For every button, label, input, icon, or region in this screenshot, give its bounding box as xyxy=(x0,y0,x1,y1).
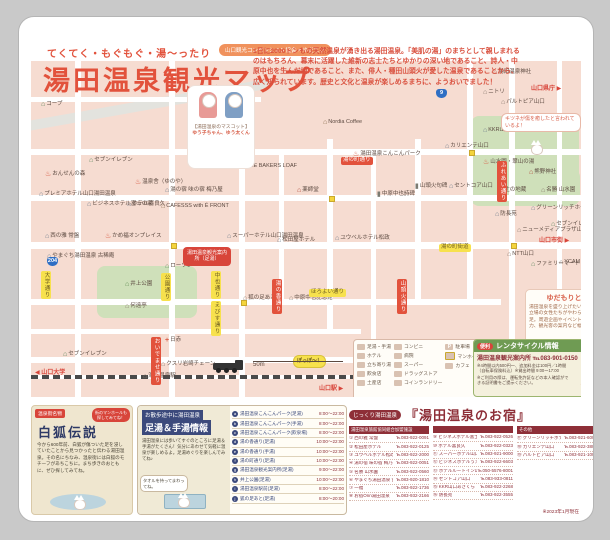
lodging-column-3: その他 ⑰ グリーンリッチホテル山口湯田温泉℡083-921-6000⑱ カリエ… xyxy=(517,426,594,501)
white-fox-illustration xyxy=(529,141,543,153)
legend-item: コインランドリー xyxy=(394,379,442,386)
map-landmark: ▮ 山頭火句碑 xyxy=(415,183,447,190)
landmark-icon: ⌂ xyxy=(551,221,555,228)
map-landmark: ⌂ YCAM xyxy=(559,259,580,266)
rental-title: レンタサイクル情報 xyxy=(496,341,559,351)
landmark-icon: ▮ xyxy=(415,183,419,190)
footbath-entry-time: 10:00〜22:00 xyxy=(316,458,344,464)
white-fox-illustration xyxy=(176,494,190,506)
route-shield: 204 xyxy=(47,257,58,266)
road xyxy=(75,61,81,397)
landmark-label: おんせんの森 xyxy=(52,171,85,177)
map-landmark: ⌂ 何遠亭 xyxy=(125,303,147,310)
footbath-info-panel: お散歩途中に湯田温泉 足湯＆手湯情報 湯田温泉には歩いてすぐのところに足湯＆手湯… xyxy=(137,405,347,515)
map-area: ⌂ 湯田温泉神社 ⌂ ニトリ ⌂ パルトピア山口 ⌂ xyxy=(31,61,581,397)
hotel-row: ⑬ ホテルルートイン山口湯田温泉℡050-5576-8001 xyxy=(433,467,513,475)
lodging-column-2: ⑨ ビジネスホテル富士の家℡083-922-0526⑩ ホテル喜良久℡083-9… xyxy=(433,426,513,501)
lodging-group-1-band-2 xyxy=(433,426,513,433)
hotel-row: ⑩ ホテル喜良久℡083-922-0323 xyxy=(433,442,513,450)
landmark-icon: ⌂ xyxy=(289,295,293,302)
lodging-column-1: 湯田温泉旅館協同組合加盟施設 ① 西の雅 常盤℡083-922-0091② 松田… xyxy=(349,426,429,501)
map-landmark: ♨ 温泉舎（ゆのや） xyxy=(135,179,186,186)
map-landmark: + 日赤 xyxy=(165,337,181,344)
landmark-icon: ⌂ xyxy=(507,251,511,258)
landmark-icon: ⌂ xyxy=(335,235,339,242)
landmark-icon: ⌂ xyxy=(277,237,281,244)
mascot-caption: 【湯田温泉のマスコット】ゆう子ちゃん、ゆう太くん xyxy=(188,125,254,137)
landmark-icon: ♨ xyxy=(135,179,141,186)
footbath-entry-time: 8:00〜20:00 xyxy=(319,496,344,502)
landmark-icon: ⌂ xyxy=(125,281,129,288)
rental-note-2: ※ご利用の際は、運転免許証などの本人確認ができる証明書をご提示ください。 xyxy=(477,375,569,386)
footbath-entry: b 湯田温泉こんこんパーク(手湯) 8:00〜22:00 xyxy=(232,419,344,428)
footbath-entry-key: g xyxy=(232,467,238,473)
map-landmark: ⌂ NTT山口 xyxy=(507,251,534,258)
map-landmark: ⌂ 西の雅 常盤 xyxy=(45,233,79,240)
landmark-label: 熊野神社 xyxy=(534,169,556,175)
hotel-row: ① 西の雅 常盤℡083-922-0091 xyxy=(349,435,429,443)
landmark-label: かめ福オンプレイス xyxy=(112,233,161,239)
map-landmark: ⌂ パルトピア山口 xyxy=(501,99,545,106)
rental-phone: 湯田温泉観光案内所 ℡083-901-0150 xyxy=(477,353,581,362)
road-label: 湯の香通り xyxy=(272,279,282,314)
map-poster: ⌂ 湯田温泉神社 ⌂ ニトリ ⌂ パルトピア山口 ⌂ xyxy=(0,0,610,540)
landmark-icon: ⌂ xyxy=(531,261,535,268)
fox-legend-title: 白狐伝説 xyxy=(38,422,98,441)
map-landmark: ▮ 中原中也詩碑 xyxy=(377,191,415,198)
road-label: 湯の町街道 xyxy=(439,244,471,252)
legend-chip xyxy=(357,344,365,350)
map-landmark: ⌂ プレミアホテル山口湯田温泉 xyxy=(39,191,116,198)
footbath-entry-key: b xyxy=(232,421,238,427)
legend-item: コンビニ xyxy=(394,343,442,350)
footbath-entry-time: 9:00〜22:00 xyxy=(319,467,344,473)
landmark-label: 日赤 xyxy=(170,337,181,343)
landmark-label: 湯の宿 味の宿 梅乃屋 xyxy=(170,187,223,193)
map-landmark: ⌂ コープ xyxy=(41,101,62,108)
footbath-entry-time: 8:00〜22:00 xyxy=(319,430,344,436)
road-label: ふれあい通り xyxy=(497,161,507,202)
map-landmark: ⌂ 薬師堂 xyxy=(297,187,319,194)
lodging-group-1-band: 湯田温泉旅館協同組合加盟施設 xyxy=(349,426,429,434)
footbath-entry-name: 湯の町通り(足湯) xyxy=(240,458,314,464)
map-landmark: ⌂ ニトリ xyxy=(483,89,505,96)
map-legend: 足湯・手湯ホテル立ち寄り湯飲食店土産店 コンビニ病院スーパードラッグストアコイン… xyxy=(353,339,483,397)
lodging-group-2-band: その他 xyxy=(517,426,594,434)
landmark-label: 防長苑 xyxy=(500,211,517,217)
hotel-row: ⑮ KKR山口あさくら℡083-922-2268 xyxy=(433,484,513,492)
landmark-icon: ⌂ xyxy=(89,157,93,164)
footbath-entry-time: 8:00〜22:00 xyxy=(319,486,344,492)
map-landmark: ⌂ CAFESSS with É FRONT xyxy=(161,203,229,210)
landmark-icon: ⌂ xyxy=(297,187,301,194)
rental-tag: 便利 xyxy=(477,343,493,350)
footbath-entry-name: 狐の足あと(足湯) xyxy=(240,496,317,502)
map-landmark: ⌂ 井上公園 xyxy=(125,281,152,288)
railway-line xyxy=(31,375,361,379)
hotel-row: ⑥ やまぐち湯田温泉 古稀庵℡083-920-1810 xyxy=(349,476,429,484)
road-label: ほろよい通り xyxy=(309,289,346,297)
landmark-label: YCAM xyxy=(564,259,580,265)
landmark-label: 松田屋ホテル xyxy=(282,237,315,243)
legend-chip xyxy=(357,371,365,377)
landmark-icon: ⌂ xyxy=(501,99,505,106)
landmark-icon: ⌂ xyxy=(87,201,91,208)
landmark-icon: ⌂ xyxy=(161,203,165,210)
landmark-label: ニトリ xyxy=(488,89,505,95)
legend-chip xyxy=(357,353,365,359)
road xyxy=(415,139,421,299)
road-label: 湯の町通り xyxy=(341,157,373,165)
landmark-label: NTT山口 xyxy=(512,251,534,257)
footbath-entry: e 湯の香通り(手湯) 10:00〜22:00 xyxy=(232,448,344,457)
legend-chip: P xyxy=(445,344,453,350)
hotel-row: ⑨ ビジネスホテル富士の家℡083-922-0526 xyxy=(433,434,513,442)
legend-chip xyxy=(394,371,402,377)
landmark-icon: + xyxy=(165,337,169,344)
landmark-icon: ⌂ xyxy=(517,227,521,234)
footbath-entry-key: f xyxy=(232,458,238,464)
landmark-icon: ⌂ xyxy=(529,169,533,176)
manhole-icon xyxy=(511,243,517,249)
manhole-icon xyxy=(469,150,475,156)
footbath-entry-key: a xyxy=(232,411,238,417)
manhole-badge: 街のマンホールも探してみてね！ xyxy=(92,408,130,422)
lodging-title: 『湯田温泉のお宿』 xyxy=(405,405,531,424)
footbath-entry: a 湯田温泉こんこんパーク(足湯) 8:00〜22:00 xyxy=(232,410,344,419)
footbath-entry-time: 8:00〜22:00 xyxy=(319,421,344,427)
legend-item: 土産店 xyxy=(357,379,391,386)
legend-chip xyxy=(357,362,365,368)
hotel-row: ⑤ 名勝 山水園℡083-922-0560 xyxy=(349,468,429,476)
footbath-title-top: お散歩途中に湯田温泉 xyxy=(142,410,203,420)
legend-item: 立ち寄り湯 xyxy=(357,361,391,368)
route-shield: 9 xyxy=(436,89,447,98)
landmark-icon: ⌂ xyxy=(39,191,43,198)
hotel-row: ③ ユウベルホテル松政℡083-922-2000 xyxy=(349,452,429,460)
road-label: 中也通り xyxy=(211,271,221,299)
landmark-icon: ⌂ xyxy=(445,143,449,150)
map-landmark: ♨ かめ福オンプレイス xyxy=(105,233,161,240)
park-area xyxy=(97,266,197,318)
direction-label: 山口駅 ▶ xyxy=(319,383,343,392)
landmark-label: ニューメディアプラザ山口 xyxy=(522,227,581,233)
map-landmark: ⌂ 松田屋ホテル xyxy=(277,237,315,244)
mascot-yuta xyxy=(225,92,243,118)
road-label: 大学通り xyxy=(41,271,51,299)
footer-note: ※2023年1月現在 xyxy=(542,508,579,515)
legend-item: ホテル xyxy=(357,352,391,359)
landmark-icon: ⌂ xyxy=(541,187,545,194)
landmark-label: 西の雅 常盤 xyxy=(50,233,79,239)
footbath-entry-key: d xyxy=(232,439,238,445)
legend-chip xyxy=(394,380,402,386)
landmark-icon: ⌂ xyxy=(63,351,67,358)
footbath-entry-key: j xyxy=(232,496,238,502)
legend-chip xyxy=(357,380,365,386)
hotel-row: ⑲ パルトピア山口℡083-921-1000 xyxy=(517,452,594,460)
footbath-entry: f 湯の町通り(足湯) 10:00〜22:00 xyxy=(232,457,344,466)
road xyxy=(31,149,581,155)
landmark-label: セブンイレブン xyxy=(68,351,107,357)
landmark-label: 名勝 山水園 xyxy=(546,187,575,193)
landmark-label: コープ xyxy=(46,101,62,107)
landmark-icon: ♨ xyxy=(45,171,51,178)
landmark-label: 辻の地蔵 xyxy=(504,187,526,193)
rental-cycle-box: 便利 レンタサイクル情報 湯田温泉観光案内所 ℡083-901-0150 ※4時… xyxy=(473,339,581,397)
hotel-row: ④ 湯の宿 味の宿 梅乃屋℡083-922-0051 xyxy=(349,460,429,468)
legend-chip xyxy=(394,353,402,359)
landmark-icon: ⌂ xyxy=(449,183,453,190)
map-landmark: ⌂ 狐の足あと xyxy=(243,295,276,302)
footbath-bubble: タオルを持ってまわってね。 xyxy=(140,475,188,492)
direction-label: 山口市街 ▶ xyxy=(539,235,569,244)
footbath-list: a 湯田温泉こんこんパーク(足湯) 8:00〜22:00 b 湯田温泉こんこんパ… xyxy=(232,410,344,504)
footbath-entry-name: 湯田温泉こんこんパーク(足湯) xyxy=(240,411,317,417)
landmark-icon: ▮ xyxy=(377,191,381,198)
landmark-icon: ♨ xyxy=(105,233,111,240)
hotel-row: ⑧ お宿Onn湯田温泉℡083-932-2166 xyxy=(349,493,429,501)
footbath-entry: g 湯田温泉観光案内所(足湯) 9:00〜22:00 xyxy=(232,466,344,475)
hotel-row: ⑫ ビジネスホテルうえの℡083-922-6603 xyxy=(433,459,513,467)
hotel-row: ② 松田屋ホテル℡083-922-0125 xyxy=(349,443,429,451)
footbath-entry-name: 湯田温泉こんこんパーク(手湯) xyxy=(240,421,317,427)
map-landmark: ⌂ 名勝 山水園 xyxy=(541,187,575,194)
road xyxy=(169,61,175,397)
footbath-note: 湯田温泉には歩いてすぐのところに足湯＆手湯がたくさん！気分にあわせて気軽に温泉が… xyxy=(142,438,226,463)
landmark-label: グリーンリッチホテル xyxy=(536,205,581,211)
rental-header: 便利 レンタサイクル情報 xyxy=(474,340,581,352)
landmark-icon: ⌂ xyxy=(559,259,563,266)
map-landmark: ⌂ カリエンテ山口 xyxy=(445,143,489,150)
map-landmark: ⌂ セブンイレブン xyxy=(63,351,107,358)
landmark-icon: ⌂ xyxy=(161,361,165,368)
hotel-row: ⑱ カリエンテ山口℡083-922-3800 xyxy=(517,443,594,451)
landmark-icon: ⌂ xyxy=(227,233,231,240)
hotel-row: ⑭ セントコア山口℡083-933-0811 xyxy=(433,475,513,483)
road xyxy=(279,149,284,299)
fox-legend-panel: 温泉街名物 街のマンホールも探してみてね！ 白狐伝説 今から600年前、白狐が傷… xyxy=(31,405,133,515)
footbath-entry-time: 10:00〜22:00 xyxy=(316,439,344,445)
map-landmark: ⌂ セブンイレブン xyxy=(551,221,581,228)
landmark-label: セントコア山口 xyxy=(454,183,493,189)
map-landmark: ⌂ セントコア山口 xyxy=(449,183,493,190)
landmark-label: 何遠亭 xyxy=(130,303,147,309)
footbath-entry: i 湯田温泉駅前(足湯) 8:00〜22:00 xyxy=(232,485,344,494)
landmark-icon: ♨ xyxy=(483,159,489,166)
legend-chip xyxy=(394,344,402,350)
map-scale: 50m xyxy=(253,361,343,368)
footbath-entry-key: i xyxy=(232,486,238,492)
landmark-icon: ⌂ xyxy=(483,127,487,134)
footbath-entry-key: e xyxy=(232,449,238,455)
fox-legend-ribbon: 温泉街名物 xyxy=(35,409,65,418)
lodging-panel: じっくり湯田温泉 『湯田温泉のお宿』 湯田温泉旅館協同組合加盟施設 ① 西の雅 … xyxy=(349,405,594,513)
road xyxy=(371,149,376,357)
map-landmark: ⌂ 湯の宿 味の宿 梅乃屋 xyxy=(165,187,223,194)
legend-chip xyxy=(445,352,455,360)
road xyxy=(239,139,245,397)
landmark-icon: ⌂ xyxy=(243,295,247,302)
lodging-tag: じっくり湯田温泉 xyxy=(349,410,401,420)
landmark-label: 井上公園 xyxy=(130,281,152,287)
intro-paragraph: 1日に2000トンもの天然温泉が湧き出る湯田温泉。「美肌の湯」のまちとして親しま… xyxy=(253,47,521,88)
landmark-icon: ⌂ xyxy=(495,211,499,218)
legend-item: 足湯・手湯 xyxy=(357,343,391,350)
map-landmark: ⌂ クスリ岩崎チェーン xyxy=(161,361,215,368)
road-label: 公園通り xyxy=(161,273,171,301)
steam-train-icon xyxy=(213,361,243,373)
legend-item: 病院 xyxy=(394,352,442,359)
footbath-title-main: 足湯＆手湯情報 xyxy=(142,420,211,435)
footbath-entry-time: 8:00〜22:00 xyxy=(319,411,344,417)
tourist-info-badge: 湯田温泉観光案内所（足湯） xyxy=(183,247,231,266)
landmark-label: 温泉舎（ゆのや） xyxy=(142,179,186,185)
poster-card: ⌂ 湯田温泉神社 ⌂ ニトリ ⌂ パルトピア山口 ⌂ xyxy=(18,16,594,522)
road xyxy=(467,61,473,299)
yudamori-title: ゆだもりとは… xyxy=(529,293,581,303)
landmark-label: セブンイレブン xyxy=(94,157,133,163)
landmark-label: パルトピア山口 xyxy=(506,99,545,105)
qr-caption: 山口市内の交通情報はこちらから！ xyxy=(579,378,581,392)
legend-item: スーパー xyxy=(394,361,442,368)
manhole-icon xyxy=(329,196,335,202)
map-landmark: ⌂ ニューメディアプラザ山口 xyxy=(517,227,581,234)
landmark-icon: ⌂ xyxy=(45,233,49,240)
mascot-card: 【湯田温泉のマスコット】ゆう子ちゃん、ゆう太くん xyxy=(187,85,255,169)
landmark-icon: ⌂ xyxy=(143,373,147,380)
map-landmark: ⌂ セブンイレブン xyxy=(89,157,133,164)
white-fox-illustration xyxy=(72,496,86,508)
map-landmark: ♨ 山水園・翠山の湯 xyxy=(483,159,534,166)
landmark-icon: ⌂ xyxy=(531,205,535,212)
footbath-entry: d 湯の香通り(足湯) 10:00〜22:00 xyxy=(232,438,344,447)
legend-item: ドラッグストア xyxy=(394,370,442,377)
landmark-label: プレミアホテル山口湯田温泉 xyxy=(44,191,116,197)
footbath-entry-name: 湯田温泉こんこんパーク(飲泉場) xyxy=(240,430,317,436)
hotel-row: ⑦ 一福℡083-922-1736 xyxy=(349,485,429,493)
yudamori-body: 湯田温泉を盛り上げたい、さまざまな立場の女性たちがやわらとなって発足。周遊企画や… xyxy=(529,305,581,331)
footbath-entry: j 狐の足あと(足湯) 8:00〜20:00 xyxy=(232,494,344,503)
landmark-label: 薬師堂 xyxy=(302,187,319,193)
footbath-entry: c 湯田温泉こんこんパーク(飲泉場) 8:00〜22:00 xyxy=(232,429,344,438)
fox-legend-body: 今から600年前、白狐が傷ついた足を浸していたことから見つかったと伝わる湯田温泉… xyxy=(37,442,127,474)
landmark-label: カリエンテ山口 xyxy=(450,143,489,149)
map-landmark: ⌂ ホテル喜良久 xyxy=(127,201,165,208)
landmark-icon: ⌂ xyxy=(41,101,45,108)
landmark-label: やまぐち湯田温泉 古稀庵 xyxy=(52,253,114,259)
hotel-row: ⑯ 防長苑℡083-922-3555 xyxy=(433,492,513,500)
footbath-entry: h 井上公園(足湯) 10:00〜22:00 xyxy=(232,476,344,485)
footbath-entry-name: 湯田温泉駅前(足湯) xyxy=(240,486,317,492)
footbath-entry-name: 湯の香通り(足湯) xyxy=(240,439,314,445)
landmark-label: 中原中也詩碑 xyxy=(382,191,415,197)
manhole-icon xyxy=(171,243,177,249)
landmark-icon: ⌂ xyxy=(165,263,169,270)
legend-chip xyxy=(394,362,402,368)
road-label: おいでませ通り xyxy=(151,337,161,385)
road-label: 山頭火通り xyxy=(397,279,407,314)
legend-chip xyxy=(445,363,453,369)
map-landmark: ⌂ グリーンリッチホテル xyxy=(531,205,581,212)
landmark-label: 山頭火句碑 xyxy=(420,183,448,189)
landmark-icon: ⌂ xyxy=(165,187,169,194)
map-landmark: ⌂ ユウベルホテル松政 xyxy=(335,235,390,242)
hotel-row: ⑰ グリーンリッチホテル山口湯田温泉℡083-921-6000 xyxy=(517,435,594,443)
lodging-header: じっくり湯田温泉 『湯田温泉のお宿』 xyxy=(349,405,594,424)
map-landmark: ⌂ 防長苑 xyxy=(495,211,517,218)
footbath-entry-time: 10:00〜22:00 xyxy=(316,477,344,483)
rental-note-1: ※4時間以内500円〜、追加料金は100円／1時間（自転車保険料込）※貸出時間 … xyxy=(477,363,569,374)
coffee-shop-label: ⌂Nordia Coffee xyxy=(323,119,362,126)
footbath-entry-time: 10:00〜22:00 xyxy=(316,449,344,455)
landmark-icon: ⌂ xyxy=(483,89,487,96)
footbath-intro-side: お散歩途中に湯田温泉 足湯＆手湯情報 湯田温泉には歩いてすぐのところに足湯＆手湯… xyxy=(138,406,230,514)
map-landmark: ♨ おんせんの森 xyxy=(45,171,85,178)
hotel-row: ⑪ スーパーホテル山口湯田温泉℡083-921-9000 xyxy=(433,451,513,459)
direction-label: ◀ 山口大学 xyxy=(35,367,65,376)
poster-tagline: てくてく・もぐもぐ・湯〜ったり xyxy=(47,45,211,60)
footbath-entry-name: 井上公園(足湯) xyxy=(240,477,314,483)
landmark-label: CAFESSS with É FRONT xyxy=(166,203,229,209)
footbath-entry-key: h xyxy=(232,477,238,483)
landmark-icon: ⌂ xyxy=(127,201,131,208)
landmark-label: クスリ岩崎チェーン xyxy=(166,361,215,367)
legend-item: 飲食店 xyxy=(357,370,391,377)
landmark-icon: ⌂ xyxy=(125,303,129,310)
footbath-entry-key: c xyxy=(232,430,238,436)
footbath-entry-name: 湯の香通り(手湯) xyxy=(240,449,314,455)
road-label: えびす通り xyxy=(211,301,221,336)
map-landmark: ⌂ 熊野神社 xyxy=(529,169,556,176)
mascot-yuko xyxy=(199,92,217,118)
fox-speech-bubble: キツネが傷を癒したと言われているよ！ xyxy=(501,113,581,132)
landmark-label: セブンイレブン xyxy=(556,221,581,227)
landmark-label: ユウベルホテル松政 xyxy=(340,235,390,241)
direction-label: 山口県庁 ▶ xyxy=(531,83,561,92)
footbath-entry-name: 湯田温泉観光案内所(足湯) xyxy=(240,467,317,473)
